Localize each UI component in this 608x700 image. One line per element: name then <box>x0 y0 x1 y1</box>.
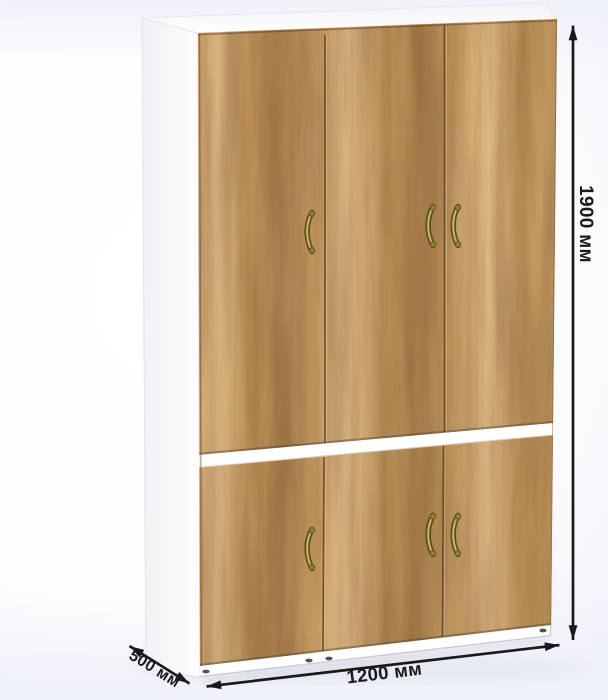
wood-grain-light-patches <box>193 12 563 684</box>
cabinet-foot <box>202 670 209 674</box>
height-dimension-label: 1900 мм <box>575 185 596 263</box>
wardrobe-left-side-panel <box>142 18 200 677</box>
door-gap-line <box>443 446 444 637</box>
door-gap-line <box>323 457 324 651</box>
cabinet-foot <box>325 657 332 661</box>
product-dimension-diagram: 1900 мм 1200 мм 500 мм <box>0 0 608 700</box>
cabinet-foot <box>305 659 312 663</box>
cabinet-foot <box>539 629 546 633</box>
wardrobe <box>142 3 563 684</box>
wardrobe-front-face <box>193 12 563 684</box>
wardrobe-diagram-canvas: 1900 мм 1200 мм 500 мм <box>0 0 608 700</box>
